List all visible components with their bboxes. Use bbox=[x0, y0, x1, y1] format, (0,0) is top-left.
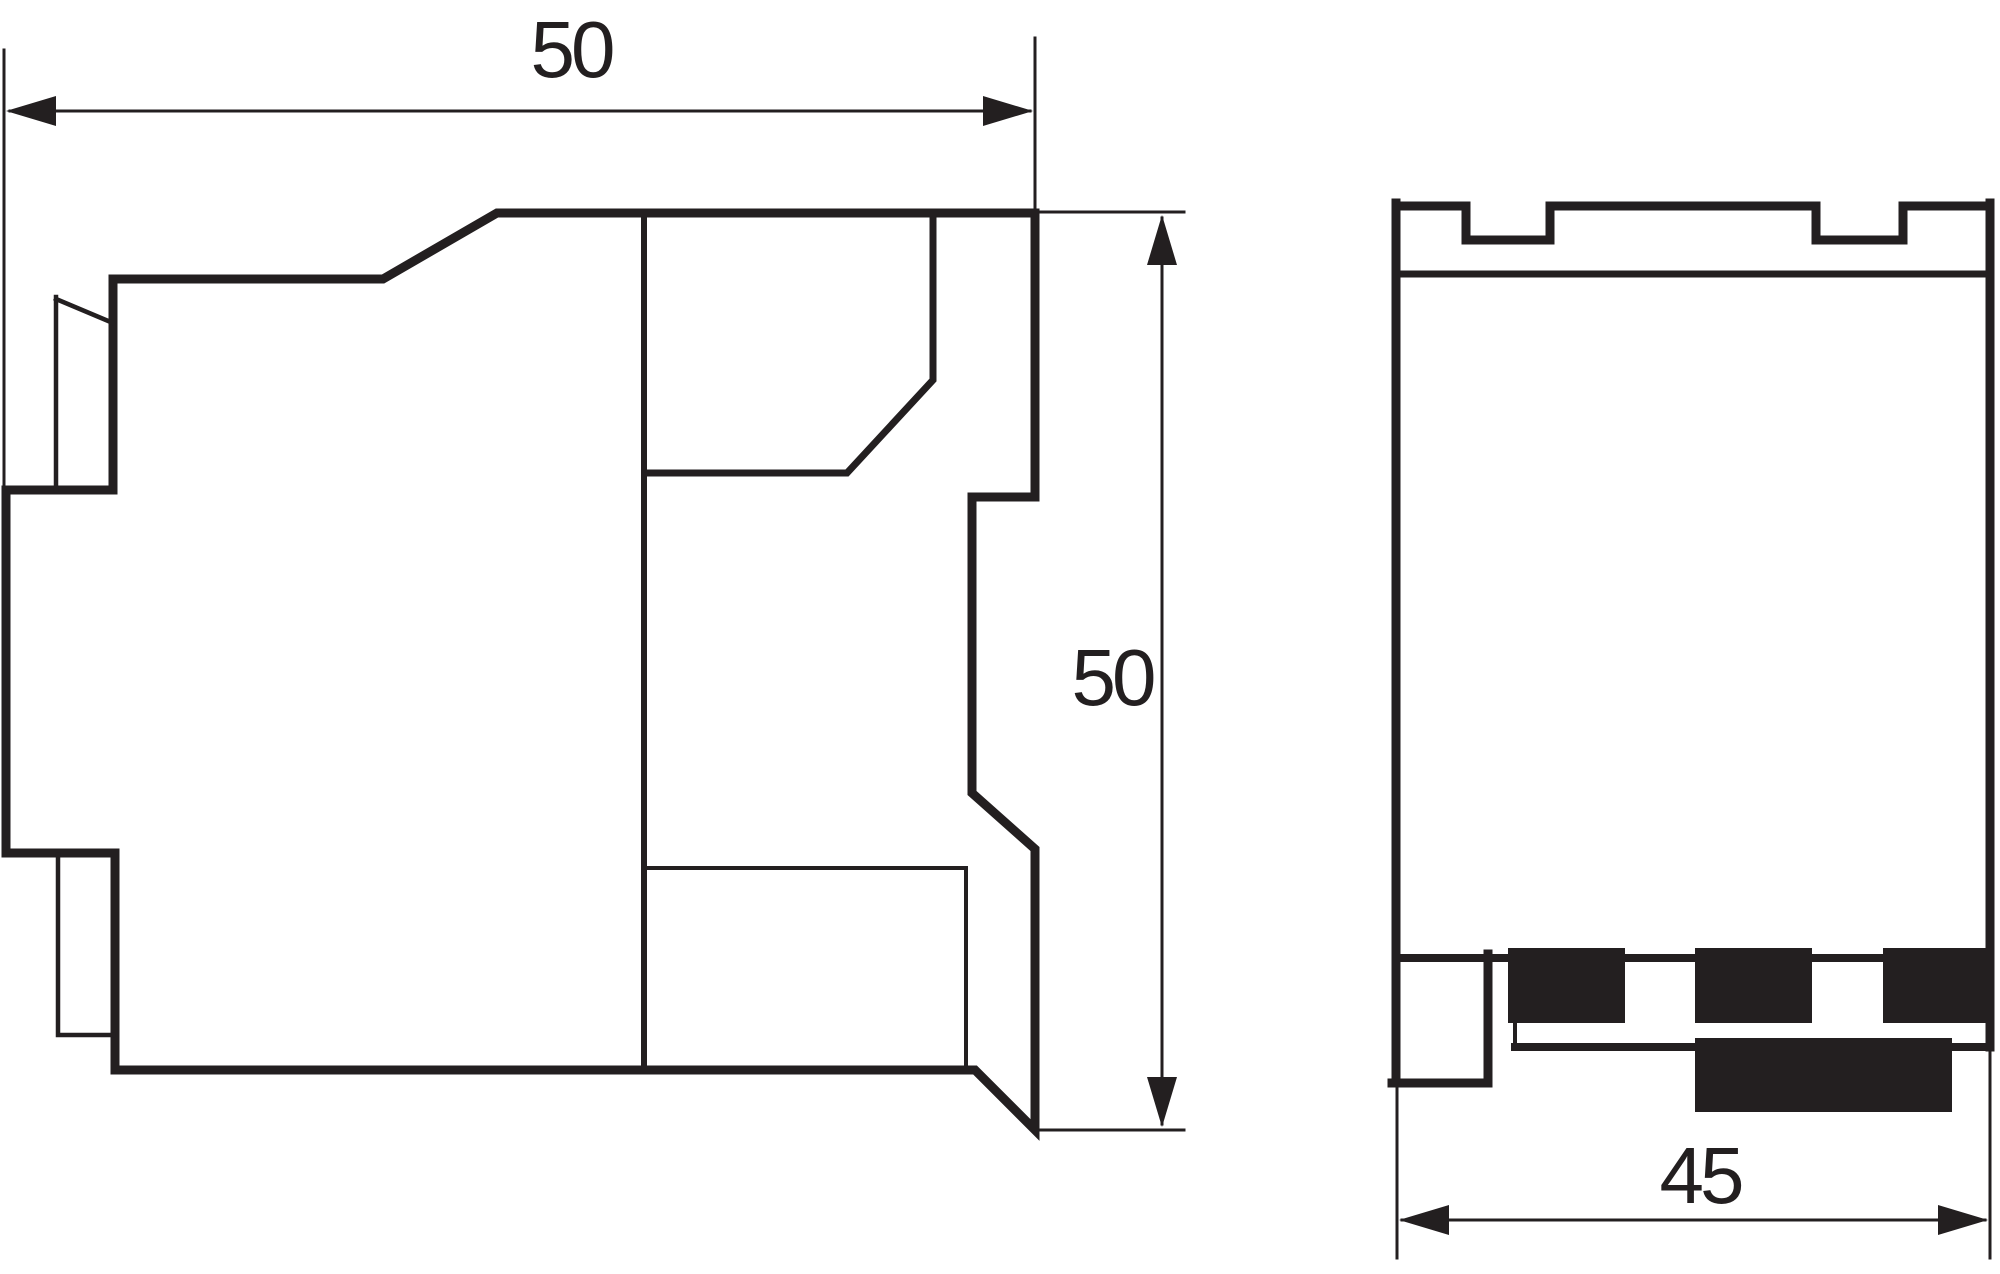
line-art bbox=[4, 38, 1990, 1258]
side-view-inner-bottom-rect bbox=[647, 868, 966, 1068]
side-view-lower-rail-clip bbox=[58, 855, 113, 1035]
side-view-outline bbox=[6, 213, 1035, 1130]
front-view-terminal-block-2 bbox=[1695, 948, 1812, 1023]
front-view-terminal-block-3 bbox=[1883, 948, 1992, 1023]
bottom-dim-arrow-left-icon bbox=[1399, 1205, 1449, 1235]
dimension-drawing-page: 50 50 45 bbox=[0, 0, 2000, 1274]
side-view-width-dimension-label: 50 bbox=[531, 5, 613, 94]
front-view-terminal-block-1 bbox=[1508, 948, 1625, 1023]
side-view bbox=[6, 213, 1035, 1130]
front-view-width-dimension-label: 45 bbox=[1660, 1131, 1742, 1220]
top-dim-arrow-right-icon bbox=[983, 96, 1033, 126]
front-view-left-foot bbox=[1392, 954, 1488, 1083]
side-view-height-dimension-label: 50 bbox=[1072, 633, 1154, 722]
front-view-bottom-terminal-block bbox=[1695, 1038, 1952, 1112]
dimension-lines bbox=[4, 38, 1990, 1258]
side-view-upper-rail-clip bbox=[56, 297, 113, 490]
bottom-dim-arrow-right-icon bbox=[1938, 1205, 1988, 1235]
height-dim-arrow-up-icon bbox=[1147, 215, 1177, 265]
top-dim-arrow-left-icon bbox=[6, 96, 56, 126]
height-dim-arrow-down-icon bbox=[1147, 1077, 1177, 1127]
side-view-inner-chamfer-profile bbox=[645, 213, 933, 473]
technical-drawing: 50 50 45 bbox=[0, 0, 2000, 1274]
front-view-top-profile bbox=[1396, 206, 1990, 240]
